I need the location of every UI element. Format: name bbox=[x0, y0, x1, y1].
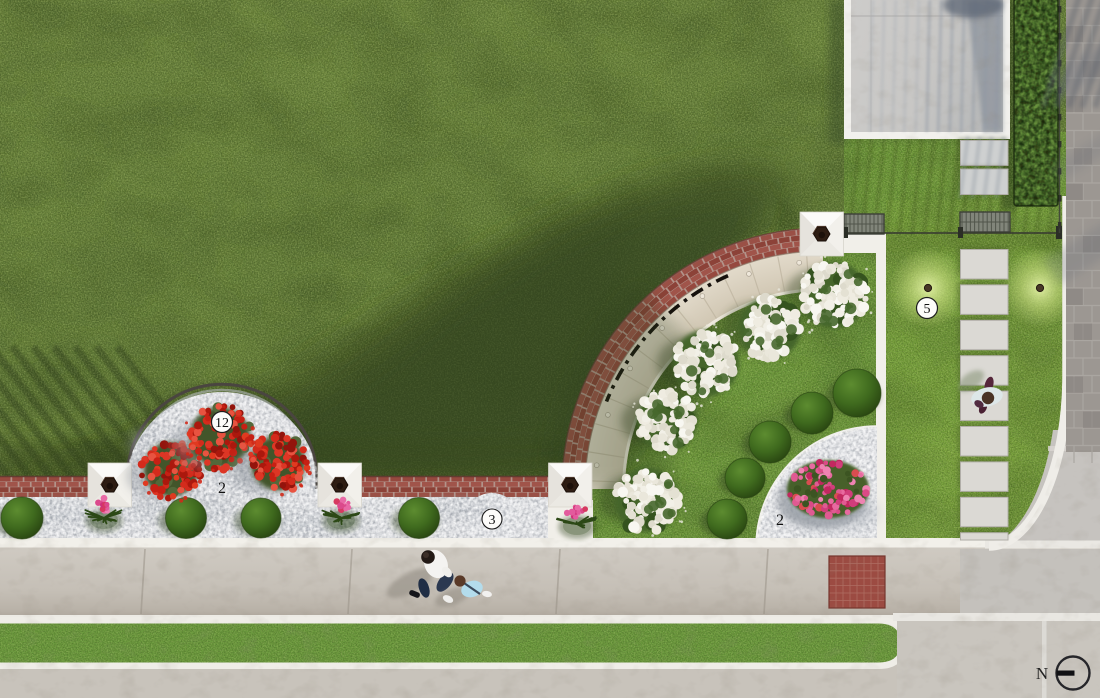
svg-text:3: 3 bbox=[489, 513, 496, 528]
svg-text:2: 2 bbox=[218, 480, 226, 497]
svg-text:12: 12 bbox=[215, 416, 229, 431]
svg-text:5: 5 bbox=[924, 302, 931, 317]
svg-text:N: N bbox=[1036, 664, 1048, 683]
svg-text:2: 2 bbox=[776, 512, 784, 529]
